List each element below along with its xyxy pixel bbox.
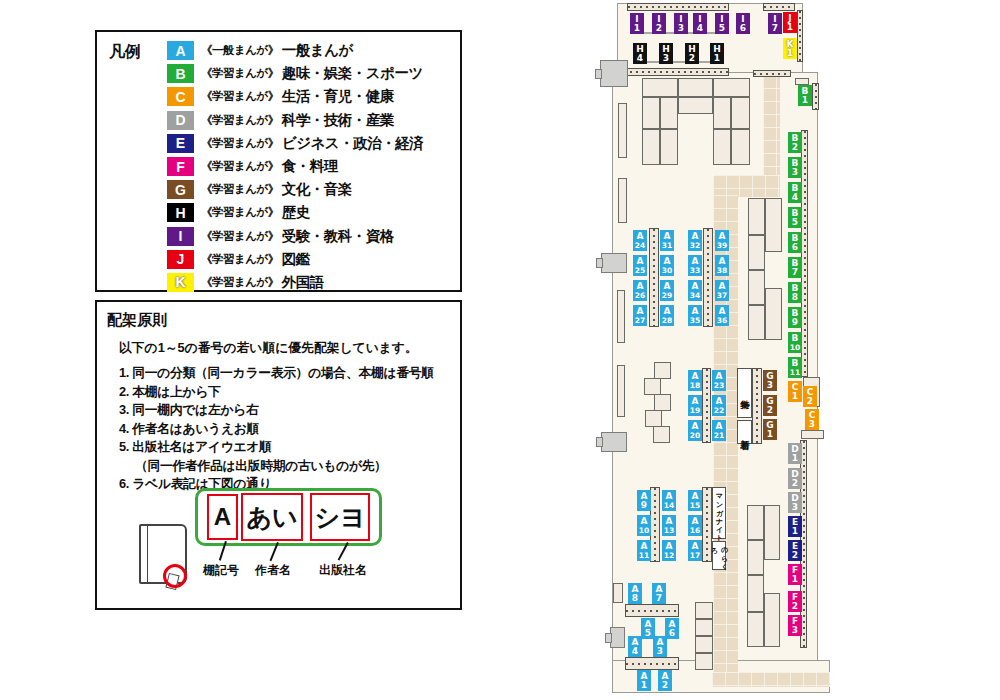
shelf-label-number: 5: [645, 629, 651, 638]
shelf-label-E1: E1: [788, 516, 802, 537]
shelf-label-A39: A39: [715, 230, 729, 251]
shelf-label-number: 4: [632, 647, 638, 656]
walkway: [763, 75, 780, 177]
legend-item-J: J《学習まんが》図鑑: [167, 248, 423, 271]
caption-shelf-code: 棚記号: [203, 562, 239, 579]
door-notch: [605, 633, 612, 643]
caption-publisher: 出版社名: [319, 562, 367, 579]
example-shelf-code: A: [207, 494, 238, 540]
shelf-label-number: 1: [787, 23, 793, 32]
shelf-label-A10: A10: [637, 515, 651, 536]
shelf-label-letter: A: [692, 232, 699, 241]
shelf-label-A32: A32: [688, 230, 702, 251]
legend-chip-E: E: [167, 134, 194, 153]
shelf-label-number: 9: [792, 318, 798, 327]
shelf-label-number: 17: [690, 551, 700, 560]
shelf-label-D3: D3: [788, 492, 802, 513]
legend-item-K: K《学習まんが》外国語: [167, 271, 423, 294]
legend-series: 《学習まんが》: [201, 182, 279, 197]
shelf-label-number: 27: [635, 316, 645, 325]
door: [601, 432, 627, 452]
shelf-label-B7: B7: [788, 257, 802, 278]
legend-category: 文化・音楽: [282, 180, 352, 199]
shelf-label-A30: A30: [660, 255, 674, 276]
shelf-label-number: 5: [719, 24, 725, 33]
shelf-label-B5: B5: [788, 207, 802, 228]
legend-chip-I: I: [167, 227, 194, 246]
principles-title: 配架原則: [107, 311, 167, 330]
legend-chip-H: H: [167, 203, 194, 222]
principles-intro: 以下の1～5の番号の若い順に優先配架しています。: [119, 340, 418, 357]
door-notch: [596, 258, 603, 268]
bookshelf: [695, 619, 713, 636]
shelf-label-number: 30: [662, 266, 672, 275]
shelf-label-A21: A21: [712, 420, 726, 441]
shelf-label-letter: A: [716, 372, 723, 381]
bookshelf: [748, 235, 765, 270]
bookshelf: [644, 378, 661, 395]
shelf-label-F3: F3: [788, 615, 802, 636]
shelf-label-number: 6: [792, 243, 798, 252]
shelf-label-I4: I4: [693, 13, 707, 34]
bookshelf: [618, 178, 627, 223]
shelf-label-number: 1: [792, 392, 798, 401]
floor-map-page: 凡例 A《一般まんが》一般まんがB《学習まんが》趣味・娯楽・スポーツC《学習まん…: [0, 0, 1000, 700]
bookshelf: [618, 103, 627, 158]
shelf-label-letter: A: [637, 282, 644, 291]
shelf-label-A14: A14: [662, 490, 676, 511]
shelf-label-letter: A: [641, 517, 648, 526]
bookshelf: [748, 305, 765, 340]
legend-category: 一般まんが: [282, 41, 353, 60]
shelf-label-number: 4: [637, 54, 643, 63]
shelf-label-A19: A19: [688, 395, 702, 416]
shelf-label-number: 34: [690, 291, 700, 300]
shelf-label-A26: A26: [633, 280, 647, 301]
shelf-label-H3: H3: [659, 43, 673, 64]
door-notch: [596, 437, 603, 447]
shelf-label-number: 3: [663, 54, 669, 63]
shelf-label-letter: A: [666, 492, 673, 501]
shelf-label-number: 3: [792, 503, 798, 512]
shelf-label-number: 37: [717, 291, 727, 300]
shelf-label-A29: A29: [660, 280, 674, 301]
shelf-label-B3: B3: [788, 157, 802, 178]
shelf-label-number: 6: [669, 629, 675, 638]
shelf-label-number: 18: [690, 381, 700, 390]
bookshelf: [713, 129, 731, 165]
bookshelf: [642, 129, 660, 165]
walkway: [712, 672, 830, 687]
legend-category: 外国語: [282, 273, 324, 292]
shelf-label-A7: A7: [652, 583, 666, 604]
shelf-label-number: 23: [714, 381, 724, 390]
shelf-label-number: 20: [690, 431, 700, 440]
shelf-label-K1: K1: [783, 38, 797, 59]
legend-series: 《学習まんが》: [201, 89, 279, 104]
legend-item-F: F《学習まんが》食・料理: [167, 155, 423, 178]
shelf-label-number: 2: [792, 551, 798, 560]
shelf-label-number: 2: [662, 681, 668, 690]
shelf-label-number: 1: [792, 575, 798, 584]
principle-item-6: （同一作者作品は出版時期の古いものが先）: [119, 457, 434, 476]
shelf-label-I3: I3: [674, 13, 688, 34]
shelf-label-I1: I1: [630, 13, 644, 34]
shelf-label-number: 32: [690, 241, 700, 250]
shelf-label-C2: C2: [803, 386, 817, 407]
door: [601, 253, 627, 273]
shelf-label-letter: A: [664, 232, 671, 241]
caption-author: 作者名: [255, 562, 291, 579]
shelf-label-I6: I6: [736, 13, 750, 34]
bookshelf: [731, 129, 750, 165]
legend-chip-K: K: [167, 273, 194, 292]
bookshelf: [660, 97, 678, 129]
bookshelf: [747, 612, 764, 647]
tag-highlight-circle: [163, 564, 187, 588]
shelf-label-D2: D2: [788, 468, 802, 489]
principles-panel: 配架原則 以下の1～5の番号の若い順に優先配架しています。 1. 同一の分類（同…: [95, 300, 462, 610]
shelf-strip: [801, 130, 808, 377]
shelf-label-letter: A: [692, 282, 699, 291]
shelf-strip: [753, 70, 791, 77]
shelf-label-number: 31: [662, 241, 672, 250]
legend-series: 《一般まんが》: [201, 43, 279, 58]
shelf-label-A2: A2: [658, 670, 672, 691]
shelf-label-number: 3: [678, 24, 684, 33]
bookshelf: [645, 410, 662, 427]
shelf-label-C1: C1: [788, 381, 802, 402]
legend-series: 《学習まんが》: [201, 205, 279, 220]
shelf-label-number: 10: [639, 526, 649, 535]
shelf-label-number: 7: [656, 594, 662, 603]
area-shinchaku: 新着: [737, 420, 752, 444]
shelf-label-letter: A: [692, 542, 699, 551]
shelf-label-letter: A: [692, 257, 699, 266]
shelf-label-letter: A: [692, 422, 699, 431]
legend-chip-C: C: [167, 87, 194, 106]
shelf-label-letter: A: [637, 257, 644, 266]
shelf-label-number: 3: [792, 168, 798, 177]
shelf-strip: [703, 228, 713, 327]
shelf-label-number: 2: [807, 397, 813, 406]
shelf-label-A28: A28: [660, 305, 674, 326]
shelf-label-A1: A1: [637, 670, 651, 691]
legend-category: 趣味・娯楽・スポーツ: [282, 64, 423, 83]
shelf-label-G2: G2: [763, 395, 777, 416]
shelf-strip: [763, 3, 795, 11]
legend-category: 科学・技術・産業: [282, 111, 394, 130]
shelf-label-G3: G3: [763, 370, 777, 391]
shelf-label-A18: A18: [688, 370, 702, 391]
bookshelf: [695, 653, 713, 670]
shelf-strip: [650, 487, 660, 562]
legend-series: 《学習まんが》: [201, 159, 279, 174]
shelf-label-A22: A22: [712, 395, 726, 416]
bookshelf: [764, 593, 780, 647]
shelf-label-number: 22: [714, 406, 724, 415]
shelf-label-number: 3: [767, 381, 773, 390]
legend-series: 《学習まんが》: [201, 66, 279, 81]
legend-item-B: B《学習まんが》趣味・娯楽・スポーツ: [167, 62, 423, 85]
shelf-label-number: 1: [634, 24, 640, 33]
shelf-label-letter: A: [719, 282, 726, 291]
shelf-label-letter: A: [719, 257, 726, 266]
legend-category: 図鑑: [282, 250, 310, 269]
legend-category: ビジネス・政治・経済: [282, 134, 423, 153]
shelf-label-number: 10: [790, 343, 800, 352]
shelf-label-letter: A: [637, 307, 644, 316]
shelf-label-letter: A: [664, 282, 671, 291]
shelf-label-A9: A9: [637, 490, 651, 511]
shelf-label-number: 35: [690, 316, 700, 325]
legend-chip-D: D: [167, 111, 194, 130]
bookshelf: [660, 129, 678, 165]
bookshelf: [764, 505, 780, 560]
shelf-label-E2: E2: [788, 540, 802, 561]
shelf-label-number: 4: [697, 24, 703, 33]
shelf-label-A35: A35: [688, 305, 702, 326]
bookshelf: [654, 362, 671, 379]
legend-item-H: H《学習まんが》歴史: [167, 201, 423, 224]
legend-series: 《学習まんが》: [201, 275, 279, 290]
shelf-label-C3: C3: [805, 409, 819, 430]
shelf-label-B9: B9: [788, 307, 802, 328]
bookshelf: [695, 636, 713, 653]
shelf-label-number: 11: [790, 368, 800, 377]
legend-series: 《学習まんが》: [201, 252, 279, 267]
shelf-label-A37: A37: [715, 280, 729, 301]
shelf-label-number: 1: [767, 430, 773, 439]
bookshelf: [748, 270, 765, 305]
shelf-label-A20: A20: [688, 420, 702, 441]
bookshelf: [678, 97, 713, 114]
legend-chip-A: A: [167, 41, 194, 60]
example-author: あい: [241, 493, 303, 541]
legend-panel: 凡例 A《一般まんが》一般まんがB《学習まんが》趣味・娯楽・スポーツC《学習まん…: [95, 30, 462, 292]
shelf-label-A23: A23: [712, 370, 726, 391]
shelf-label-number: 3: [792, 626, 798, 635]
shelf-label-number: 6: [740, 24, 746, 33]
shelf-label-number: 2: [656, 24, 662, 33]
shelf-strip: [617, 68, 729, 76]
shelf-label-letter: A: [719, 232, 726, 241]
shelf-label-I5: I5: [715, 13, 729, 34]
shelf-label-number: 36: [717, 316, 727, 325]
shelf-label-B6: B6: [788, 232, 802, 253]
bookshelf: [801, 430, 824, 439]
shelf-label-number: 19: [690, 406, 700, 415]
shelf-label-B1: B1: [798, 85, 812, 106]
shelf-label-number: 1: [792, 454, 798, 463]
bookshelf: [617, 365, 625, 417]
shelf-label-number: 1: [787, 49, 793, 58]
shelf-label-A24: A24: [633, 230, 647, 251]
bookshelf: [642, 78, 678, 97]
bookshelf: [765, 198, 782, 252]
door: [600, 60, 628, 87]
shelf-strip: [812, 83, 819, 110]
shelf-label-A31: A31: [660, 230, 674, 251]
shelf-label-letter: A: [716, 397, 723, 406]
shelf-label-B10: B10: [788, 332, 802, 353]
shelf-label-A36: A36: [715, 305, 729, 326]
legend-chip-F: F: [167, 157, 194, 176]
legend-series: 《学習まんが》: [201, 136, 279, 151]
shelf-label-number: 15: [690, 501, 700, 510]
shelf-label-A16: A16: [688, 515, 702, 536]
legend-item-A: A《一般まんが》一般まんが: [167, 39, 423, 62]
shelf-label-number: 2: [689, 54, 695, 63]
legend-item-E: E《学習まんが》ビジネス・政治・経済: [167, 132, 423, 155]
shelf-label-number: 9: [641, 501, 647, 510]
shelf-label-I7: I7: [768, 13, 782, 34]
shelf-label-A33: A33: [688, 255, 702, 276]
shelf-label-letter: A: [666, 542, 673, 551]
shelf-label-letter: A: [664, 257, 671, 266]
shelf-label-number: 21: [714, 431, 724, 440]
principle-item-2: 2. 本棚は上から下: [119, 383, 434, 402]
shelf-label-number: 2: [792, 479, 798, 488]
shelf-label-number: 8: [792, 293, 798, 302]
shelf-label-number: 4: [792, 193, 798, 202]
shelf-label-F2: F2: [788, 591, 802, 612]
shelf-label-J1: J1: [783, 12, 797, 33]
shelf-label-number: 7: [792, 268, 798, 277]
walkway: [713, 175, 780, 197]
bookshelf: [747, 575, 764, 612]
principle-item-5: 5. 出版社名はアイウエオ順: [119, 438, 434, 457]
legend-series: 《学習まんが》: [201, 113, 279, 128]
bookshelf: [613, 583, 623, 603]
legend-category: 受験・教科・資格: [282, 227, 394, 246]
legend-series: 《学習まんが》: [201, 229, 279, 244]
shelf-label-I2: I2: [652, 13, 666, 34]
bookshelf: [747, 540, 764, 575]
principles-list: 1. 同一の分類（同一カラー表示）の場合、本棚は番号順2. 本棚は上から下3. …: [119, 364, 434, 494]
bookshelf: [654, 394, 671, 411]
legend-chip-B: B: [167, 64, 194, 83]
shelf-label-number: 12: [664, 551, 674, 560]
area-norakuro: のらくろ: [712, 541, 726, 570]
shelf-strip: [625, 657, 679, 670]
shelf-strip: [625, 604, 679, 617]
shelf-label-number: 5: [792, 218, 798, 227]
shelf-label-A6: A6: [665, 618, 679, 639]
shelf-label-number: 8: [632, 594, 638, 603]
shelf-label-letter: B: [792, 359, 799, 368]
shelf-label-A12: A12: [662, 540, 676, 561]
shelf-label-letter: A: [692, 372, 699, 381]
shelf-label-B8: B8: [788, 282, 802, 303]
shelf-label-letter: A: [637, 232, 644, 241]
bookshelf: [653, 426, 670, 443]
legend-chip-G: G: [167, 180, 194, 199]
legend-item-C: C《学習まんが》生活・育児・健康: [167, 85, 423, 108]
shelf-label-number: 38: [717, 266, 727, 275]
shelf-strip: [797, 10, 803, 62]
shelf-label-A4: A4: [628, 636, 642, 657]
shelf-label-letter: A: [716, 422, 723, 431]
legend-item-D: D《学習まんが》科学・技術・産業: [167, 109, 423, 132]
shelf-label-number: 1: [641, 681, 647, 690]
shelf-label-number: 11: [639, 551, 649, 560]
shelf-label-number: 2: [792, 602, 798, 611]
shelf-label-A27: A27: [633, 305, 647, 326]
principle-item-4: 4. 作者名はあいうえお順: [119, 420, 434, 439]
bookshelf: [795, 78, 809, 85]
shelf-label-B4: B4: [788, 182, 802, 203]
shelf-strip: [752, 368, 762, 444]
principle-item-1: 1. 同一の分類（同一カラー表示）の場合、本棚は番号順: [119, 364, 434, 383]
shelf-label-letter: A: [641, 542, 648, 551]
shelf-label-number: 29: [662, 291, 672, 300]
bookshelf: [765, 288, 782, 340]
legend-category: 生活・育児・健康: [282, 87, 394, 106]
bookshelf: [678, 78, 713, 97]
bookshelf: [731, 97, 750, 129]
bookshelf: [617, 290, 625, 343]
shelf-label-number: 25: [635, 266, 645, 275]
shelf-label-number: 1: [792, 527, 798, 536]
legend-item-G: G《学習まんが》文化・音楽: [167, 178, 423, 201]
shelf-label-number: 1: [802, 96, 808, 105]
shelf-label-letter: A: [666, 517, 673, 526]
bookshelf: [695, 602, 713, 619]
shelf-strip: [702, 368, 711, 443]
door: [610, 627, 625, 648]
shelf-label-number: 3: [809, 420, 815, 429]
bookshelf: [642, 97, 660, 129]
shelf-label-A34: A34: [688, 280, 702, 301]
shelf-label-number: 33: [690, 266, 700, 275]
bookshelf: [747, 505, 764, 540]
shelf-label-B2: B2: [788, 132, 802, 153]
legend-category: 食・料理: [282, 157, 338, 176]
shelf-label-letter: A: [692, 492, 699, 501]
legend-rows: A《一般まんが》一般まんがB《学習まんが》趣味・娯楽・スポーツC《学習まんが》生…: [167, 39, 423, 294]
area-manga-night: マンガナイト: [712, 487, 726, 539]
shelf-label-number: 3: [657, 647, 663, 656]
area-tokushu: 特集: [737, 368, 752, 418]
shelf-label-G1: G1: [763, 419, 777, 440]
shelf-label-D1: D1: [788, 443, 802, 464]
shelf-label-A8: A8: [628, 583, 642, 604]
shelf-label-number: 16: [690, 526, 700, 535]
shelf-label-H1: H1: [710, 43, 724, 64]
shelf-label-letter: A: [692, 517, 699, 526]
example-publisher: シヨ: [310, 493, 370, 541]
shelf-label-number: 14: [664, 501, 674, 510]
bookshelf: [713, 78, 750, 97]
shelf-label-H4: H4: [633, 43, 647, 64]
shelf-label-A15: A15: [688, 490, 702, 511]
shelf-label-number: 13: [664, 526, 674, 535]
legend-category: 歴史: [282, 203, 310, 222]
shelf-label-number: 7: [772, 24, 778, 33]
shelf-label-number: 2: [767, 406, 773, 415]
shelf-strip: [649, 228, 659, 327]
shelf-label-letter: B: [792, 334, 799, 343]
shelf-label-letter: A: [692, 397, 699, 406]
shelf-label-number: 39: [717, 241, 727, 250]
shelf-label-number: 24: [635, 241, 645, 250]
principle-item-3: 3. 同一棚内では左から右: [119, 401, 434, 420]
shelf-label-letter: A: [692, 307, 699, 316]
shelf-strip: [627, 3, 729, 11]
bookshelf: [713, 97, 731, 129]
shelf-label-B11: B11: [788, 357, 802, 378]
